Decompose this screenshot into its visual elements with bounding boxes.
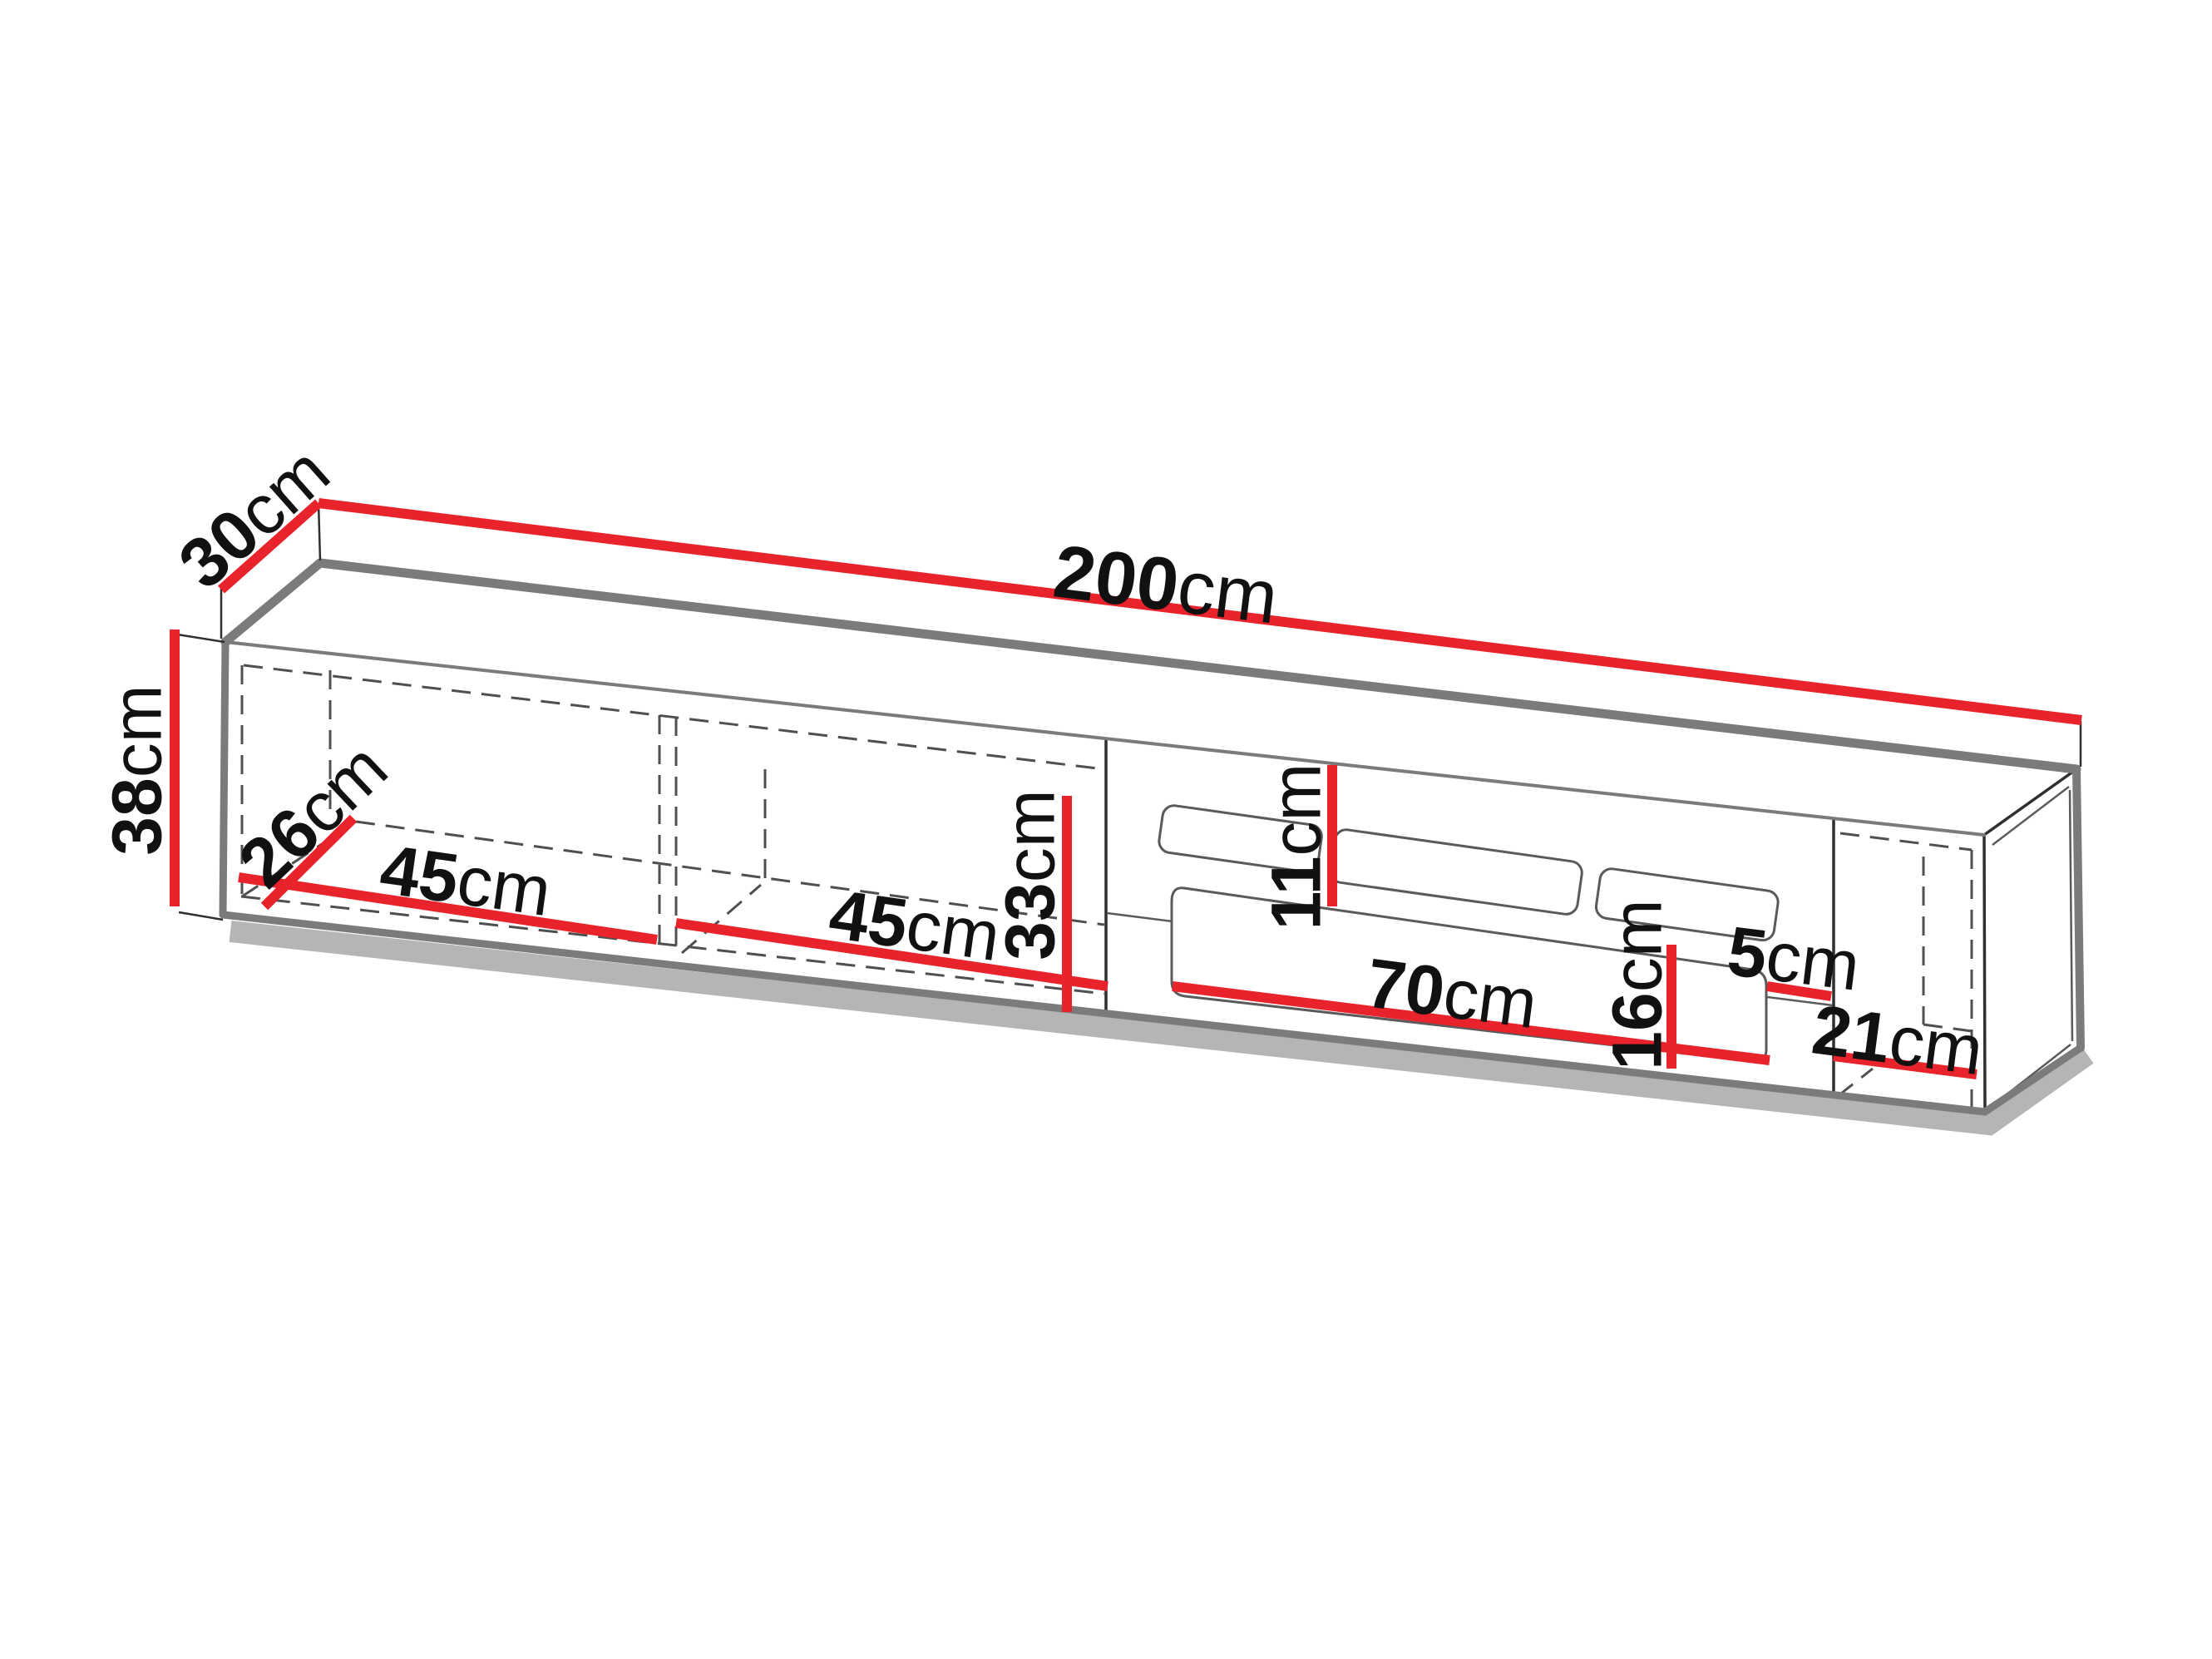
dimension-label-overall-height: 38cm bbox=[97, 684, 175, 855]
front-right-edge bbox=[1984, 835, 1985, 1112]
ext-height-bottom bbox=[179, 912, 223, 920]
dimension-label-flap-opening-height: 16cm bbox=[1597, 899, 1676, 1069]
ext-height-top bbox=[172, 634, 225, 642]
front-left-edge bbox=[223, 642, 225, 915]
dimension-label-top-recess-height: 11cm bbox=[1257, 763, 1335, 931]
dimension-label-overall-width: 200cm bbox=[1049, 530, 1282, 639]
back-right-edge bbox=[2076, 769, 2081, 1048]
dimension-label-interior-height: 33cm bbox=[990, 789, 1069, 960]
furniture-dimension-diagram: 30cm 200cm 38cm 26cm 45cm 45cm 33cm 11cm… bbox=[0, 0, 2212, 1659]
dimension-label-divider-gap: 5cm bbox=[1723, 911, 1864, 1005]
